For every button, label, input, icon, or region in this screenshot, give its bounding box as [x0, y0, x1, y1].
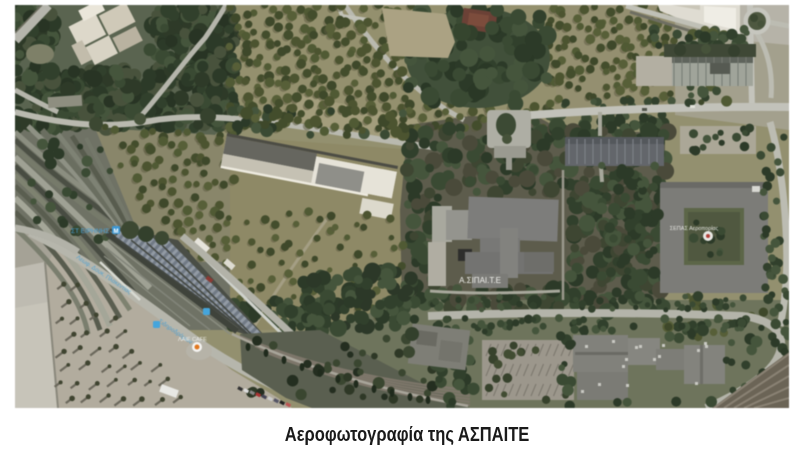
svg-text:ΣΕΠΑΣ Αεροπορίας: ΣΕΠΑΣ Αεροπορίας — [670, 226, 719, 232]
svg-text:ΛΑΙΕ CAFE: ΛΑΙΕ CAFE — [178, 337, 207, 343]
svg-text:M: M — [114, 229, 119, 235]
svg-text:ΣΤ ΕΙΡΗΝΗΣ: ΣΤ ΕΙΡΗΝΗΣ — [71, 228, 109, 235]
svg-text:Α.ΣΙΠΑΙ.Τ.Ε: Α.ΣΙΠΑΙ.Τ.Ε — [459, 276, 501, 285]
